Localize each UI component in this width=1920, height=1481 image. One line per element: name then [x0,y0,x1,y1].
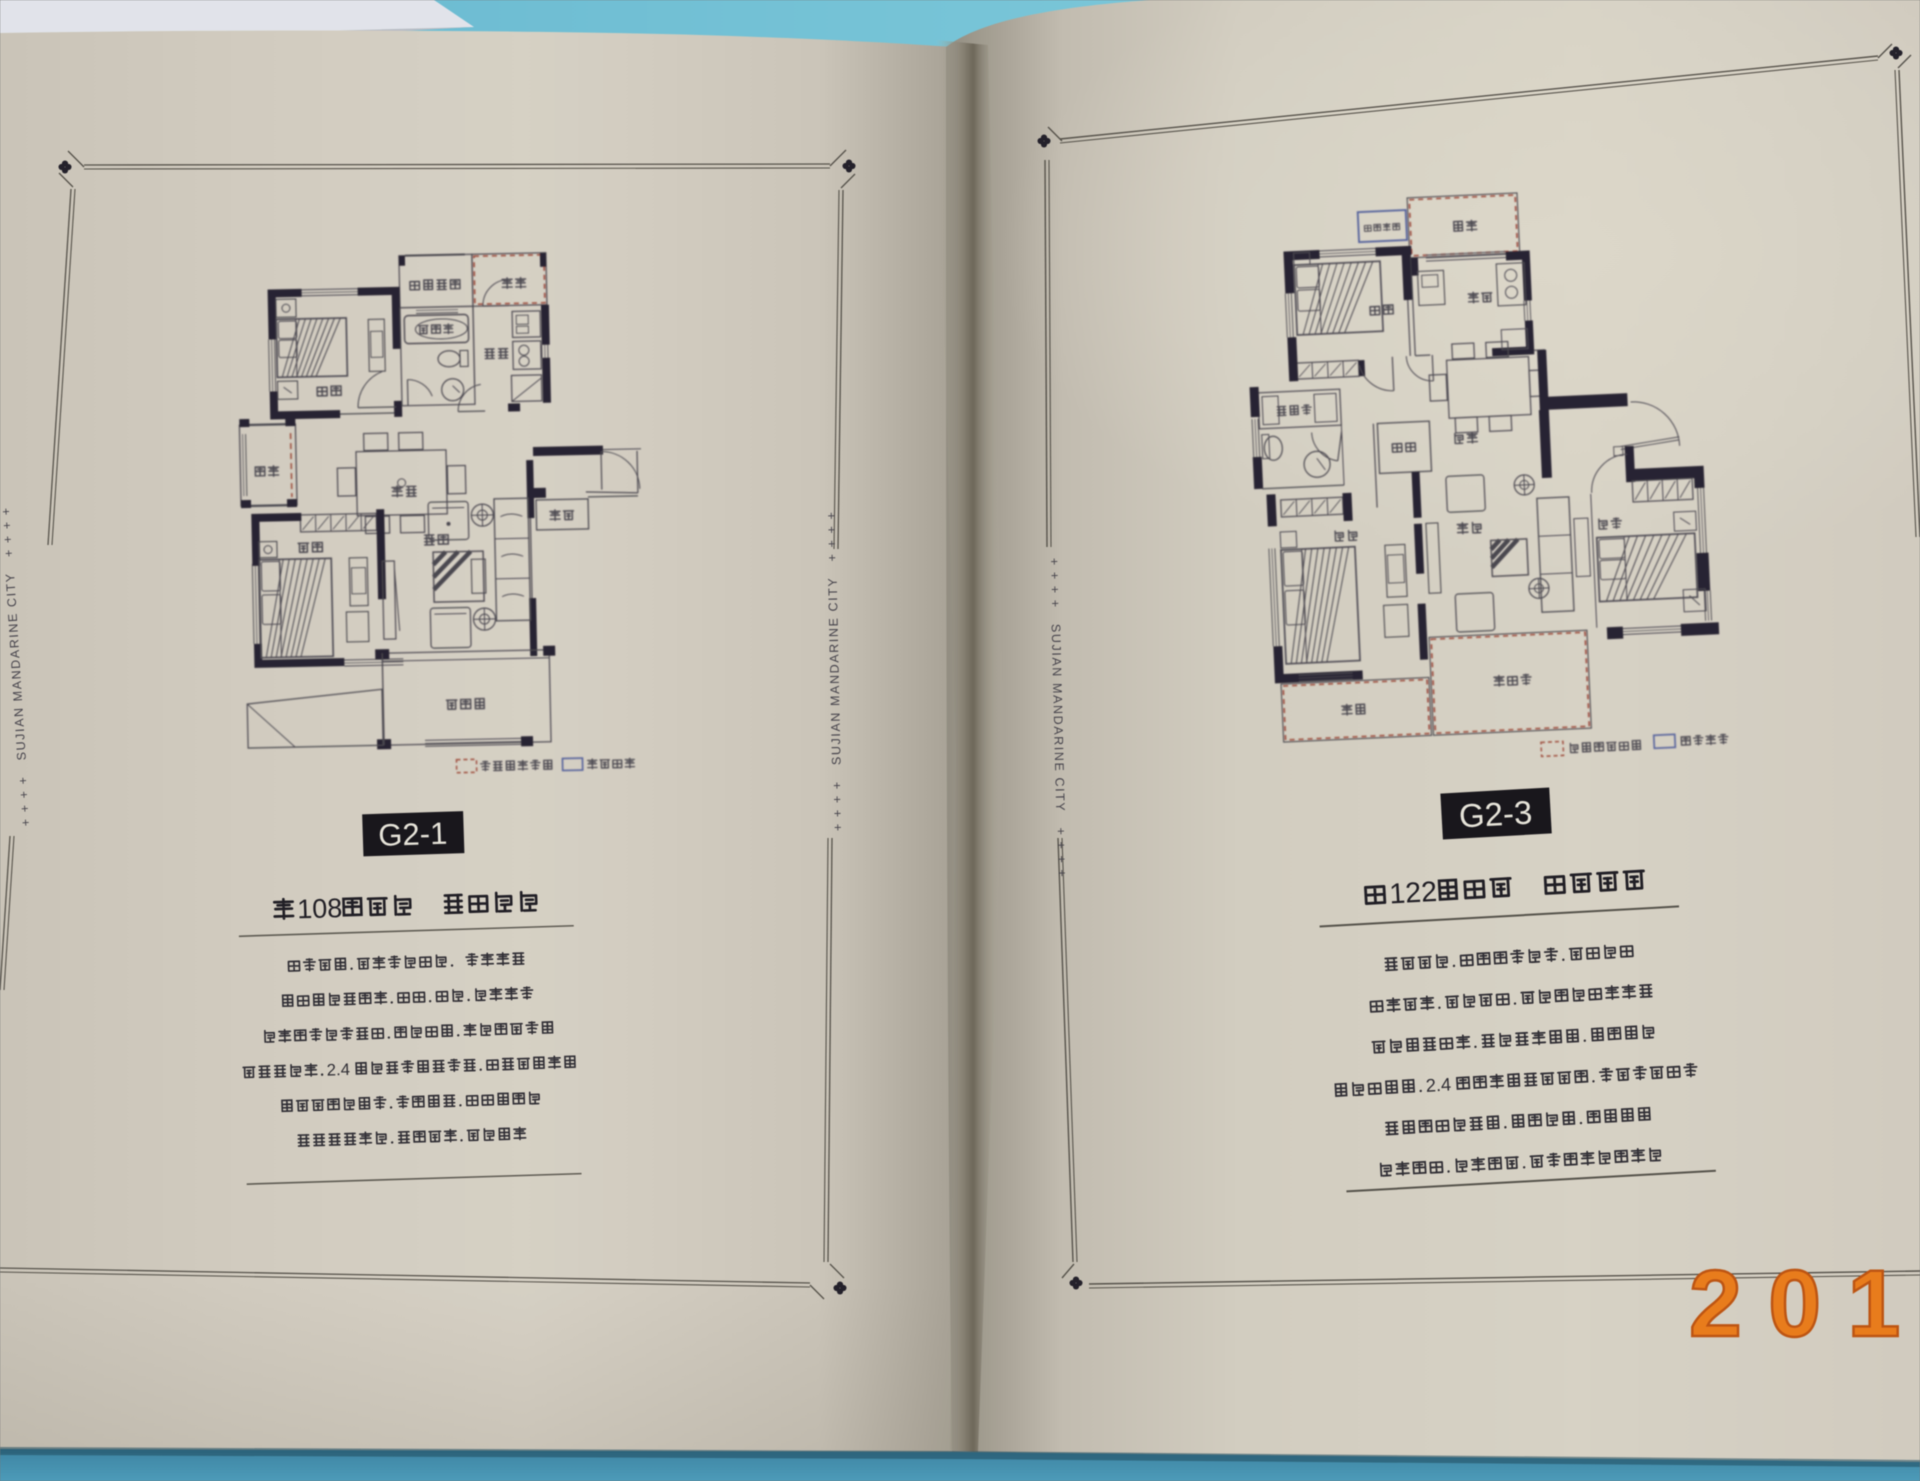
svg-text:2 0 1: 2 0 1 [1689,1251,1900,1357]
svg-text:122: 122 [1389,876,1438,911]
svg-text:2.4: 2.4 [326,1060,350,1080]
svg-text:G2-3: G2-3 [1458,793,1533,834]
svg-text:108: 108 [297,893,343,924]
svg-text:G2-1: G2-1 [378,816,448,853]
svg-text:2.4: 2.4 [1425,1073,1452,1095]
